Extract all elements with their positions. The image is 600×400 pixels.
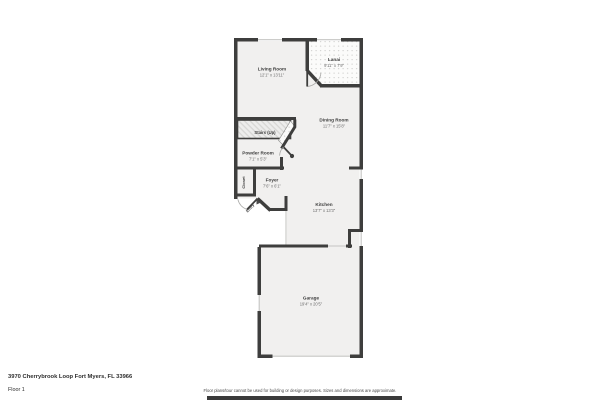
floor-fills	[238, 41, 361, 356]
living-room-label: Living Room	[258, 67, 286, 72]
closet-label: Closet	[241, 176, 246, 189]
garage-dims: 19'4" x 20'5"	[300, 302, 323, 307]
dining-room-dims: 11'7" x 15'8"	[323, 124, 346, 129]
lanai-label: Lanai	[328, 57, 340, 62]
entry-label: Entry	[245, 202, 256, 213]
powder-room-dims: 7'1" x 5'3"	[249, 157, 267, 162]
footer-bar	[207, 396, 402, 400]
stairs-label: Stairs (Up)	[254, 130, 276, 135]
kitchen-label: Kitchen	[315, 202, 332, 207]
property-address: 3970 Cherrybrook Loop Fort Myers, FL 339…	[8, 374, 132, 380]
floor-plan: Living Room 12'1" x 13'11" Lanai 9'11" x…	[0, 0, 600, 400]
dining-room-label: Dining Room	[319, 118, 348, 123]
disclaimer-text: Floor plans/tour cannot be used for buil…	[0, 388, 600, 393]
foyer-dims: 7'6" x 6'1"	[263, 184, 281, 189]
lanai-dims: 9'11" x 7'9"	[324, 63, 344, 68]
powder-room-label: Powder Room	[242, 151, 274, 156]
kitchen-dims: 13'7" x 13'3"	[313, 208, 336, 213]
garage-label: Garage	[303, 296, 320, 301]
foyer-label: Foyer	[266, 178, 279, 183]
living-room-dims: 12'1" x 13'11"	[260, 73, 285, 78]
floor-plan-page: Living Room 12'1" x 13'11" Lanai 9'11" x…	[0, 0, 600, 400]
